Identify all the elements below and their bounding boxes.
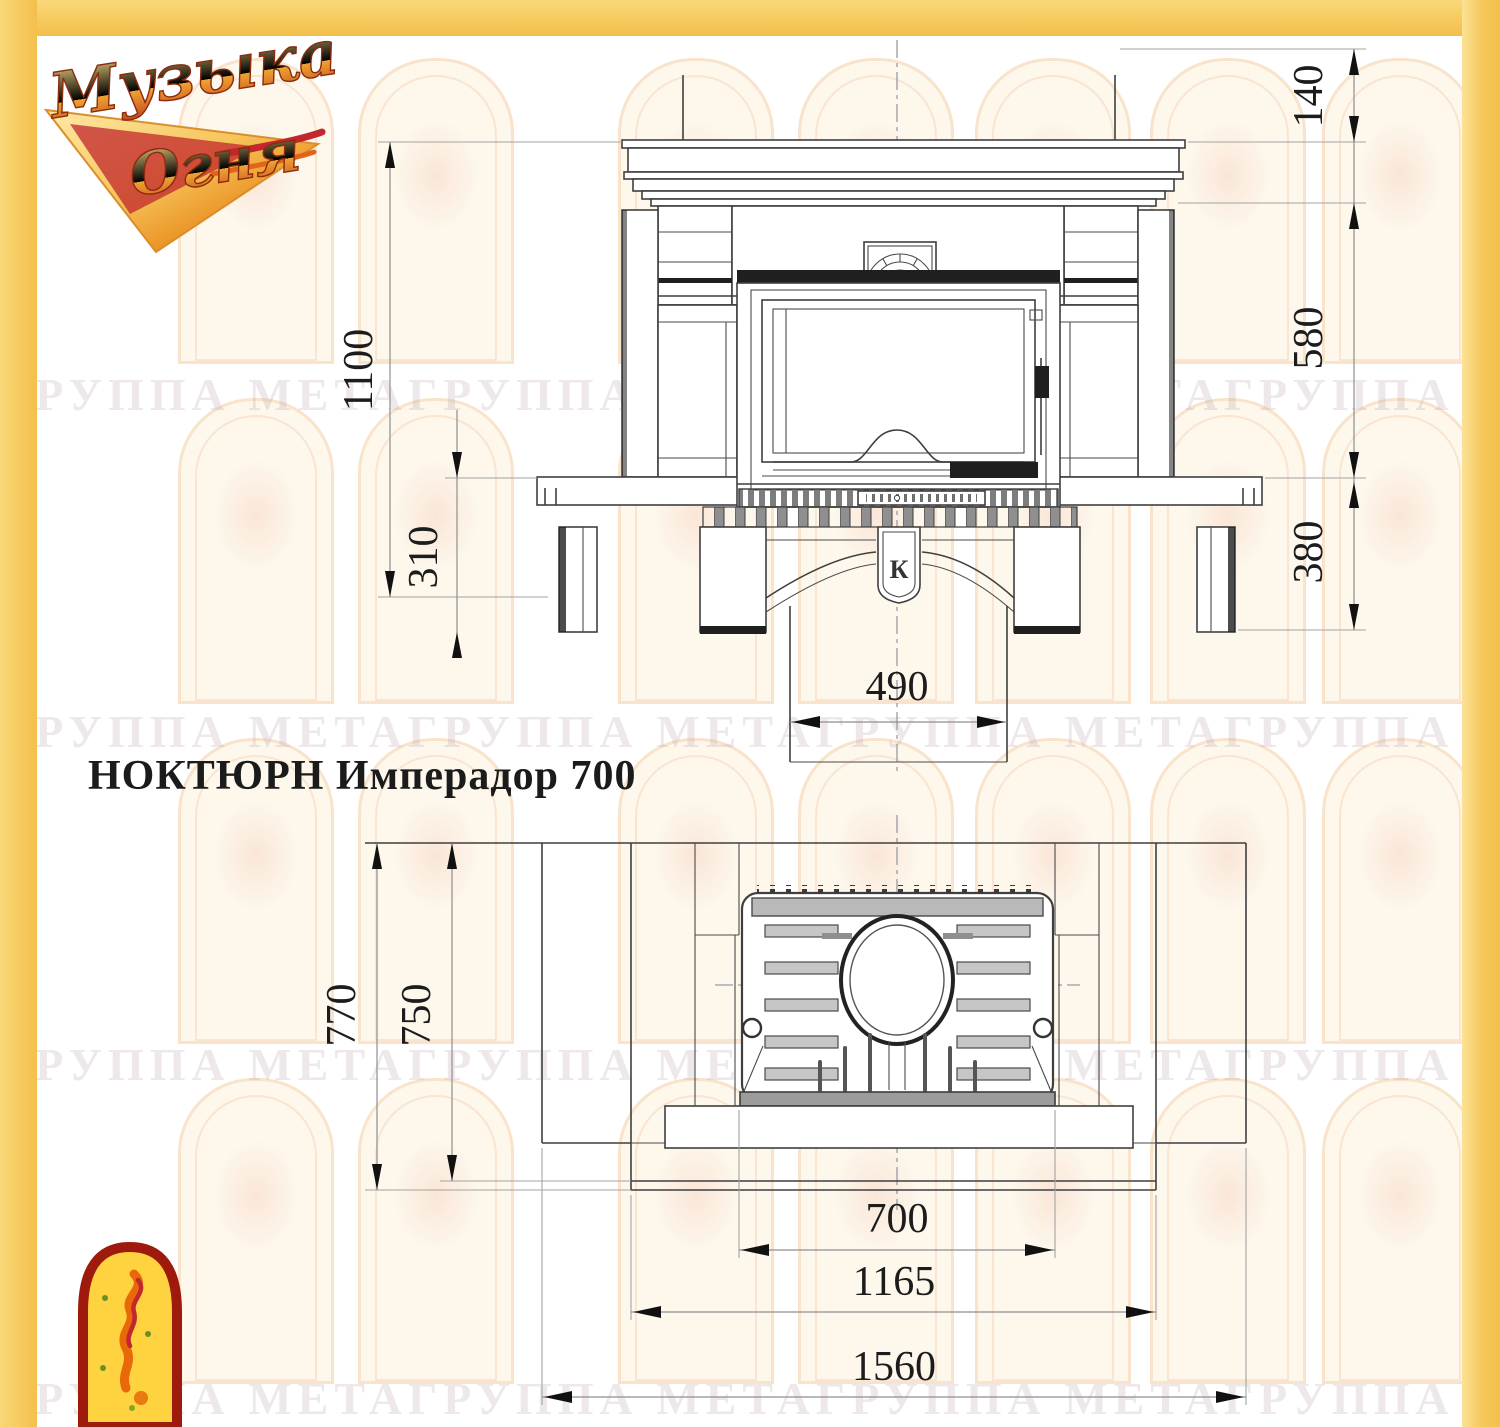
mantel-cornice (622, 140, 1185, 206)
front-view-drawing: К 1100 (336, 40, 1366, 775)
bolt-row (757, 885, 1038, 893)
brand-logo: Музыка Огня (8, 2, 338, 257)
drawing-sheet: ГРУППА МЕТАГРУППА МЕТАГРУППА МЕТАГРУППА … (0, 0, 1500, 1427)
keystone-emblem: К (878, 527, 920, 603)
border-right (1462, 0, 1500, 1427)
dim-label-770: 770 (319, 984, 365, 1047)
ash-lip (950, 462, 1038, 478)
dim-label-380: 380 (1286, 521, 1332, 584)
dim-label-1560: 1560 (852, 1344, 936, 1390)
emblem-speck (145, 1331, 151, 1337)
dim-front-pedestal-width: 490 (790, 664, 1007, 728)
emblem-dot (134, 1391, 148, 1405)
apron-slats (703, 507, 1077, 527)
emblem-speck (100, 1365, 106, 1371)
flame-emblem (74, 1236, 186, 1427)
plan-front-slab (665, 1106, 1133, 1148)
plan-stove-unit (740, 885, 1055, 1106)
boss-left (743, 1019, 761, 1037)
dim-label-490: 490 (866, 664, 929, 710)
dim-label-700: 700 (866, 1196, 929, 1242)
stove-front-rail (740, 1092, 1055, 1106)
plan-view-drawing: 770 750 700 (319, 815, 1246, 1405)
dim-front-hearth-height: 310 (401, 410, 537, 658)
dim-label-310: 310 (401, 526, 447, 589)
stove-insert (737, 270, 1060, 507)
dim-label-140: 140 (1286, 65, 1332, 128)
dim-plan-depth-outer: 770 (319, 843, 631, 1190)
dim-label-1100: 1100 (336, 329, 382, 411)
keystone-letter: К (890, 555, 909, 584)
emblem-speck (102, 1295, 108, 1301)
dim-label-580: 580 (1286, 307, 1332, 370)
model-title: НОКТЮРН Имперадор 700 (88, 752, 637, 800)
dim-plan-depth-inner: 750 (394, 843, 631, 1181)
stove-grille (739, 489, 1058, 507)
boss-right (1034, 1019, 1052, 1037)
dim-label-750: 750 (394, 984, 440, 1047)
emblem-speck (129, 1405, 135, 1411)
dim-label-1165: 1165 (853, 1259, 935, 1305)
